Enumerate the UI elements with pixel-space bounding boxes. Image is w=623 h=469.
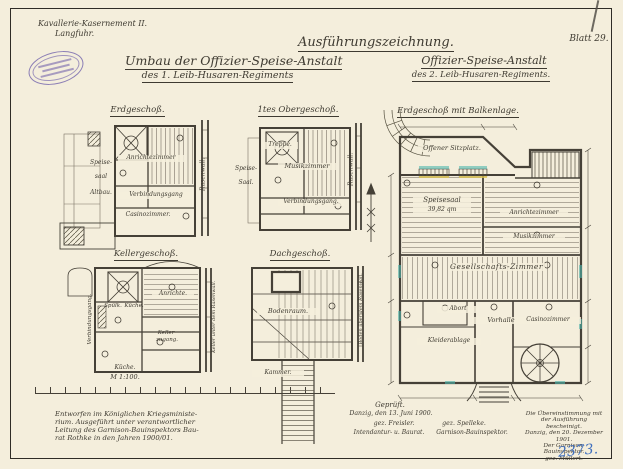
scale-label: M 1:100. bbox=[100, 374, 150, 381]
pen-mark bbox=[591, 0, 600, 32]
right-title: Offizier-Speise-Anstalt bbox=[420, 55, 548, 67]
plan-dach-drawing bbox=[240, 258, 370, 448]
skylight bbox=[272, 272, 300, 292]
plan-keller-title: Kellergeschoß. bbox=[100, 250, 192, 260]
checked-heading: Geprüft. bbox=[368, 402, 412, 410]
rampart-wall bbox=[356, 123, 361, 230]
upper-stair bbox=[532, 152, 579, 178]
plan-balkenlage-drawing bbox=[385, 115, 593, 407]
side-label: Verbindungsgang. bbox=[87, 289, 93, 349]
role-left: Intendantur- u. Baurat. bbox=[350, 430, 428, 437]
site-line2: Langfuhr. bbox=[55, 30, 145, 39]
design-note: Entworfen im Königlichen Kriegsministe- … bbox=[55, 410, 233, 442]
side-label: Rasenwall. bbox=[201, 144, 208, 204]
room-label: Speisesaal bbox=[413, 197, 471, 205]
room-area: 39,82 qm bbox=[413, 207, 471, 214]
room-label: Verbindungsgang. bbox=[278, 199, 344, 206]
room-label: Saal. bbox=[232, 180, 260, 187]
room-label: Bodenraum. bbox=[257, 308, 319, 315]
survey-arrow bbox=[362, 184, 380, 246]
drawing-sheet: { "sheet": { "site_line1": "Kavallerie-K… bbox=[0, 0, 623, 469]
room-label: saal bbox=[88, 174, 114, 181]
room-label: zugang. bbox=[152, 337, 182, 343]
plan-erdgeschoss-title: Erdgeschoß. bbox=[95, 106, 180, 116]
hearth bbox=[98, 306, 106, 328]
signature-right: gez. Spelleke. bbox=[438, 421, 490, 428]
room-label: Casinozimmer. bbox=[118, 212, 178, 219]
existing-building-outline bbox=[64, 134, 100, 228]
sheet-number: Blatt 29. bbox=[566, 34, 612, 44]
room-label: Kammer. bbox=[252, 370, 304, 377]
side-label: Rasenwall. bbox=[349, 139, 356, 199]
room-label: Musikzimmer bbox=[503, 234, 565, 241]
side-label: Boden über dem Rasenwall. bbox=[359, 269, 365, 349]
annex bbox=[60, 223, 115, 249]
left-title: Umbau der Offizier-Speise-Anstalt bbox=[125, 54, 309, 68]
spiral-stair bbox=[521, 344, 559, 382]
checked-date: Danzig, den 13. Juni 1900. bbox=[345, 411, 437, 418]
stair bbox=[108, 272, 138, 302]
room-label: Anrichtezimmer bbox=[500, 210, 568, 217]
right-subtitle: des 2. Leib-Husaren-Regiments. bbox=[408, 71, 554, 81]
archive-stamp bbox=[25, 46, 87, 91]
room-label: Speise- bbox=[232, 166, 260, 173]
room-label: Keller- bbox=[152, 330, 182, 336]
room-label: Treppe. bbox=[262, 142, 298, 149]
room-label: Abort bbox=[437, 306, 479, 313]
room-label: Speise- bbox=[88, 160, 114, 167]
doc-type-title: Ausführungszeichnung. bbox=[298, 36, 446, 51]
signature-left: gez. Freisler. bbox=[370, 421, 418, 428]
room-label: Küche. bbox=[121, 303, 147, 309]
room-label: Altbau. bbox=[88, 190, 114, 197]
left-subtitle: des 1. Leib-Husaren-Regiments bbox=[135, 71, 300, 82]
room-label: Küche. bbox=[105, 365, 145, 372]
plan-erdgeschoss-drawing bbox=[60, 118, 235, 253]
entrance-portico bbox=[467, 383, 521, 402]
chimney-hatch bbox=[88, 132, 100, 146]
room-label: Verbindungsgang bbox=[120, 192, 192, 199]
room-label: Offener Sitzplatz. bbox=[418, 145, 486, 152]
plan-obergeschoss-title: 1tes Obergeschoß. bbox=[252, 106, 344, 116]
site-line1: Kavallerie-Kasernement II. bbox=[38, 20, 178, 29]
room-label: Kleiderablage bbox=[417, 338, 481, 345]
room-label: Gesellschafts-Zimmer bbox=[448, 263, 545, 271]
role-right: Garnison-Bauinspektor. bbox=[430, 430, 514, 437]
room-label: Anrichtezimmer bbox=[118, 155, 184, 162]
room-label: Anrichte. bbox=[152, 291, 194, 298]
side-label: Keller unter dem Rasenwall. bbox=[212, 277, 218, 357]
room-label: Casinozimmer bbox=[515, 317, 581, 324]
room-label: Musikzimmer bbox=[278, 163, 336, 170]
